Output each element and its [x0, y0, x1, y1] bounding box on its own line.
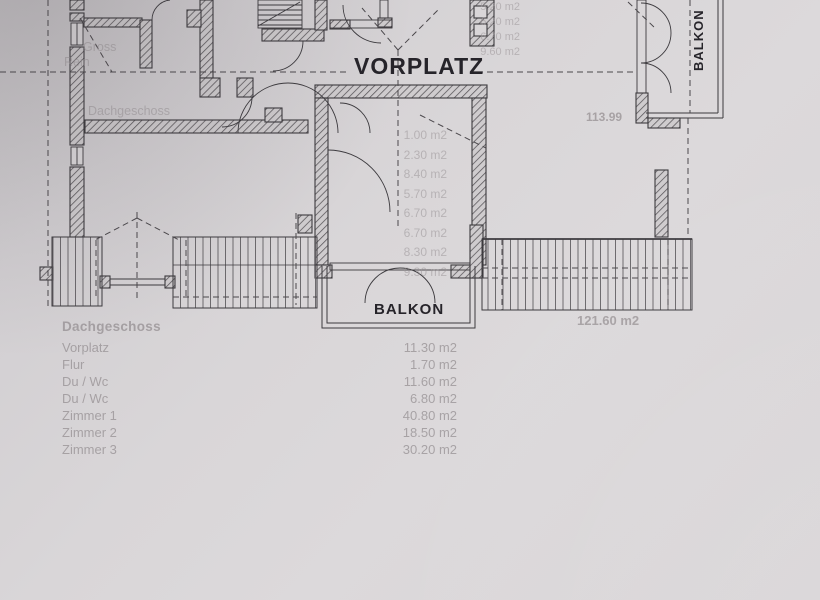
- faint-area-value: 5.70 m2: [377, 185, 447, 205]
- vorplatz-label: VORPLATZ: [354, 53, 484, 80]
- balkon-label-right: BALKON: [691, 9, 706, 71]
- faint-area-value: 6.70 m2: [377, 224, 447, 244]
- room-name: Zimmer 1: [62, 407, 117, 424]
- faint-area-column-center: 1.00 m2 2.30 m2 8.40 m2 5.70 m2 6.70 m2 …: [377, 126, 447, 282]
- room-schedule: Dachgeschoss Vorplatz 11.30 m2 Flur 1.70…: [62, 319, 457, 458]
- room-schedule-header: Dachgeschoss: [62, 319, 457, 334]
- faint-area-value: 9.30 m2: [377, 263, 447, 283]
- room-name: Flur: [62, 356, 84, 373]
- room-name: Du / Wc: [62, 373, 108, 390]
- faint-area-value: 8.30 m2: [377, 243, 447, 263]
- room-area: 30.20 m2: [403, 441, 457, 458]
- room-name: Zimmer 3: [62, 441, 117, 458]
- room-name: Zimmer 2: [62, 424, 117, 441]
- room-area: 11.60 m2: [404, 373, 457, 390]
- faint-area-value: 1.00 m2: [377, 126, 447, 146]
- floorplan-photo: VORPLATZ BALKON BALKON 1.00 m2 2.30 m2 8…: [0, 0, 820, 600]
- room-row: Zimmer 2 18.50 m2: [62, 424, 457, 441]
- faint-area-value: 6.20 m2: [470, 15, 520, 30]
- faint-area-value: 6.70 m2: [470, 30, 520, 45]
- room-row: Zimmer 3 30.20 m2: [62, 441, 457, 458]
- room-row: Du / Wc 11.60 m2: [62, 373, 457, 390]
- floorplan-drawing: [0, 0, 820, 600]
- room-name: Vorplatz: [62, 339, 109, 356]
- room-row: Zimmer 1 40.80 m2: [62, 407, 457, 424]
- room-row: Du / Wc 6.80 m2: [62, 390, 457, 407]
- room-area: 18.50 m2: [403, 424, 457, 441]
- faint-area-value: 9.60 m2: [470, 45, 520, 60]
- balcony-railing-right: [646, 0, 723, 118]
- room-area: 1.70 m2: [410, 356, 457, 373]
- faint-fragment: Rein: [64, 55, 90, 69]
- room-name: Du / Wc: [62, 390, 108, 407]
- area-total-upper: 113.99: [586, 110, 622, 124]
- faint-area-value: 2.30 m2: [377, 146, 447, 166]
- terrace-decking: [52, 237, 692, 310]
- faint-fragment: Gross: [83, 40, 116, 54]
- room-row: Flur 1.70 m2: [62, 356, 457, 373]
- faint-area-column-top: 5.20 m2 6.20 m2 6.70 m2 9.60 m2: [470, 0, 520, 60]
- faint-area-value: 5.20 m2: [470, 0, 520, 15]
- staircase: [258, 0, 302, 28]
- room-row: Vorplatz 11.30 m2: [62, 339, 457, 356]
- room-area: 6.80 m2: [410, 390, 457, 407]
- faint-area-value: 6.70 m2: [377, 204, 447, 224]
- room-area: 40.80 m2: [403, 407, 457, 424]
- area-total-lower: 121.60 m2: [577, 313, 639, 328]
- faint-area-value: 8.40 m2: [377, 165, 447, 185]
- faint-fragment: Dachgeschoss: [88, 104, 170, 118]
- room-area: 11.30 m2: [404, 339, 457, 356]
- balkon-label-bottom: BALKON: [374, 301, 444, 318]
